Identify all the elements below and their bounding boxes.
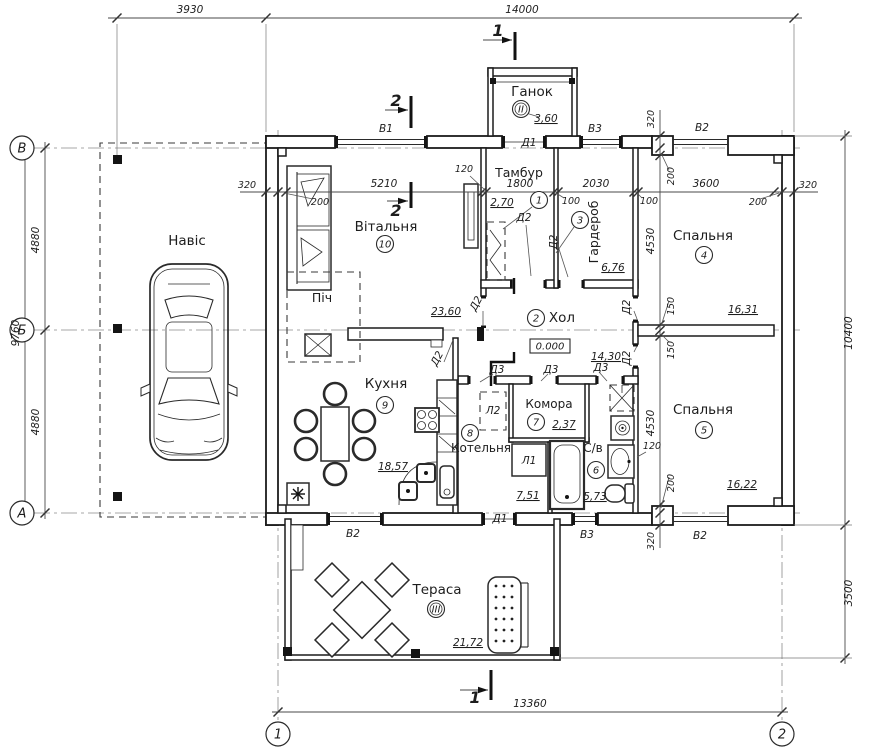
- room-number-hol: 2: [533, 314, 539, 325]
- room-number-kuhnya: 9: [382, 401, 388, 412]
- terrace-post: [283, 647, 292, 656]
- room-name-spalnya4: Спальня: [673, 228, 733, 244]
- label-d2-spalnya5: Д2: [621, 350, 633, 366]
- section-2-mark-lower: 2: [390, 201, 401, 220]
- area-spalnya5: 16,22: [727, 479, 757, 491]
- dim-10400: 10400: [843, 316, 855, 350]
- porch: [488, 68, 577, 136]
- toilet-icon: [605, 484, 634, 503]
- canopy-post: [113, 324, 122, 333]
- dim-1800: 1800: [507, 178, 534, 190]
- label-l2: Л2: [485, 405, 501, 417]
- dim-4530-top: 4530: [645, 227, 657, 254]
- room-number-garderob: 3: [577, 216, 583, 227]
- room-number-tambur: 1: [536, 196, 542, 207]
- label-v3-top: В3: [588, 123, 602, 135]
- dim-320-bottom-v: 320: [646, 532, 657, 550]
- section-2-mark-top: 2: [390, 91, 401, 110]
- window-v2-kitchen: [327, 513, 383, 525]
- fireplace-star: [291, 487, 305, 501]
- room-name-pich: Піч: [312, 290, 332, 305]
- dim-150-b: 150: [666, 341, 677, 359]
- room-number-kotelnya: 8: [467, 429, 473, 440]
- sink-icon: [608, 445, 634, 478]
- tambour-closet-icon: [487, 222, 505, 280]
- level-mark: 0.000: [530, 339, 570, 353]
- room-name-hol: Хол: [549, 310, 575, 326]
- axis-label-v: В: [18, 142, 27, 157]
- room-number-sv: 6: [593, 466, 599, 477]
- lounger-icon: [488, 577, 528, 653]
- area-spalnya4: 16,31: [728, 304, 758, 316]
- area-vitalnya: 23,60: [431, 306, 461, 318]
- room-name-navis: Навіс: [168, 233, 206, 249]
- dim-4880-top: 4880: [30, 226, 42, 253]
- canopy-post: [113, 492, 122, 501]
- room-name-komora: Комора: [525, 397, 572, 411]
- area-sv: 5,73: [583, 491, 606, 503]
- room-name-vitalnya: Вітальня: [355, 219, 418, 235]
- dim-100-left: 100: [562, 196, 580, 207]
- area-komora: 2,37: [552, 419, 576, 431]
- label-d3-kotelnya: Д3: [489, 364, 505, 376]
- area-kotelnya: 7,51: [516, 490, 539, 502]
- dim-9760: 9760: [10, 319, 22, 346]
- window-v1: [335, 136, 427, 148]
- room-name-sv: С/в: [583, 441, 603, 455]
- dim-5210: 5210: [371, 178, 398, 190]
- label-d3-komora: Д3: [543, 364, 559, 376]
- area-garderob: 6,76: [601, 262, 625, 274]
- dim-2030: 2030: [583, 178, 610, 190]
- stove-icon: [415, 408, 439, 432]
- dim-200-top-v: 200: [666, 167, 677, 185]
- dim-3500: 3500: [843, 579, 855, 606]
- label-d2-garderob: Д2: [548, 234, 560, 250]
- window-v2-bedroom: [673, 517, 728, 522]
- room-number-vitalnya: 10: [379, 240, 392, 251]
- dim-320-top-v: 320: [646, 110, 657, 128]
- window-v3-bottom: [572, 513, 598, 525]
- canopy-post: [113, 155, 122, 164]
- dim-200-bottom-v: 200: [666, 474, 677, 492]
- label-d1-top: Д1: [521, 137, 537, 149]
- dim-3930: 3930: [177, 4, 204, 16]
- section-1-mark-bottom: 1: [469, 688, 480, 707]
- terrace-post: [550, 647, 559, 656]
- boiler-icon: [611, 416, 634, 440]
- label-d2-kuhnya: Д2: [428, 349, 446, 369]
- dim-120-wall: 120: [455, 164, 473, 175]
- dim-13360: 13360: [513, 698, 547, 710]
- dim-200-right: 200: [749, 197, 767, 208]
- room-name-kuhnya: Кухня: [365, 376, 408, 392]
- room-number-spalnya5: 5: [701, 426, 707, 437]
- floor-plan-drawing: В Б А 1 2 1 1 2 2 0.000 II 1 10 3 2 4 5 …: [0, 0, 876, 750]
- label-d2-tambur: Д2: [516, 212, 532, 224]
- axis-label-1: 1: [274, 728, 282, 743]
- sofa-icon: [287, 166, 331, 290]
- bathtub-icon: [550, 441, 584, 509]
- dim-3600: 3600: [693, 178, 720, 190]
- dim-4530-bottom: 4530: [645, 409, 657, 436]
- dim-320-left: 320: [238, 180, 256, 191]
- label-v2-bedroom: В2: [693, 530, 707, 542]
- room-number-terasa: III: [432, 605, 441, 616]
- room-name-ganok: Ганок: [511, 84, 553, 100]
- room-number-komora: 7: [533, 418, 540, 429]
- label-d3-sv: Д3: [593, 362, 609, 374]
- label-v1: В1: [379, 123, 393, 135]
- section-1-mark-top: 1: [492, 21, 503, 40]
- label-v2-kitchen: В2: [346, 528, 360, 540]
- room-name-garderob: Гардероб: [586, 200, 601, 263]
- terrace-post: [411, 649, 420, 658]
- dim-200-left: 200: [311, 197, 329, 208]
- window-v2-top: [673, 140, 728, 145]
- area-ganok: 3,60: [534, 113, 558, 125]
- level-value: 0.000: [536, 342, 565, 353]
- room-name-spalnya5: Спальня: [673, 402, 733, 418]
- axis-label-2: 2: [778, 728, 786, 743]
- axis-label-a: А: [17, 507, 27, 522]
- area-tambur: 2,70: [490, 197, 514, 209]
- label-v3-bottom: В3: [580, 529, 594, 541]
- car-icon: [141, 264, 237, 460]
- room-number-spalnya4: 4: [701, 251, 707, 262]
- dim-4880-bottom: 4880: [30, 408, 42, 435]
- terrace-table-icon: [315, 563, 409, 657]
- dim-14000: 14000: [505, 4, 539, 16]
- label-v2-top: В2: [695, 122, 709, 134]
- dim-120-bath: 120: [643, 441, 661, 452]
- washing-machine-icon: [610, 385, 634, 411]
- room-name-terasa: Тераса: [411, 582, 461, 598]
- room-number-ganok: II: [518, 105, 524, 116]
- dim-150-a: 150: [666, 297, 677, 315]
- area-terasa: 21,72: [453, 637, 483, 649]
- label-d2-spalnya4: Д2: [621, 299, 633, 315]
- label-d1-bottom: Д1: [492, 513, 508, 525]
- room-number-bubbles: II 1 10 3 2 4 5 6 7 8 9 III: [377, 101, 713, 618]
- window-v3-top: [580, 136, 622, 148]
- room-name-kotelnya: Котельня: [451, 441, 511, 455]
- area-kuhnya: 18,57: [378, 461, 408, 473]
- dim-320-right: 320: [799, 180, 817, 191]
- dining-table-icon: [295, 383, 375, 485]
- label-l1: Л1: [521, 455, 537, 467]
- floor-plan-sheet: В Б А 1 2 1 1 2 2 0.000 II 1 10 3 2 4 5 …: [0, 0, 876, 750]
- dim-100-right: 100: [640, 196, 658, 207]
- hall-cabinet-icon: [464, 184, 478, 248]
